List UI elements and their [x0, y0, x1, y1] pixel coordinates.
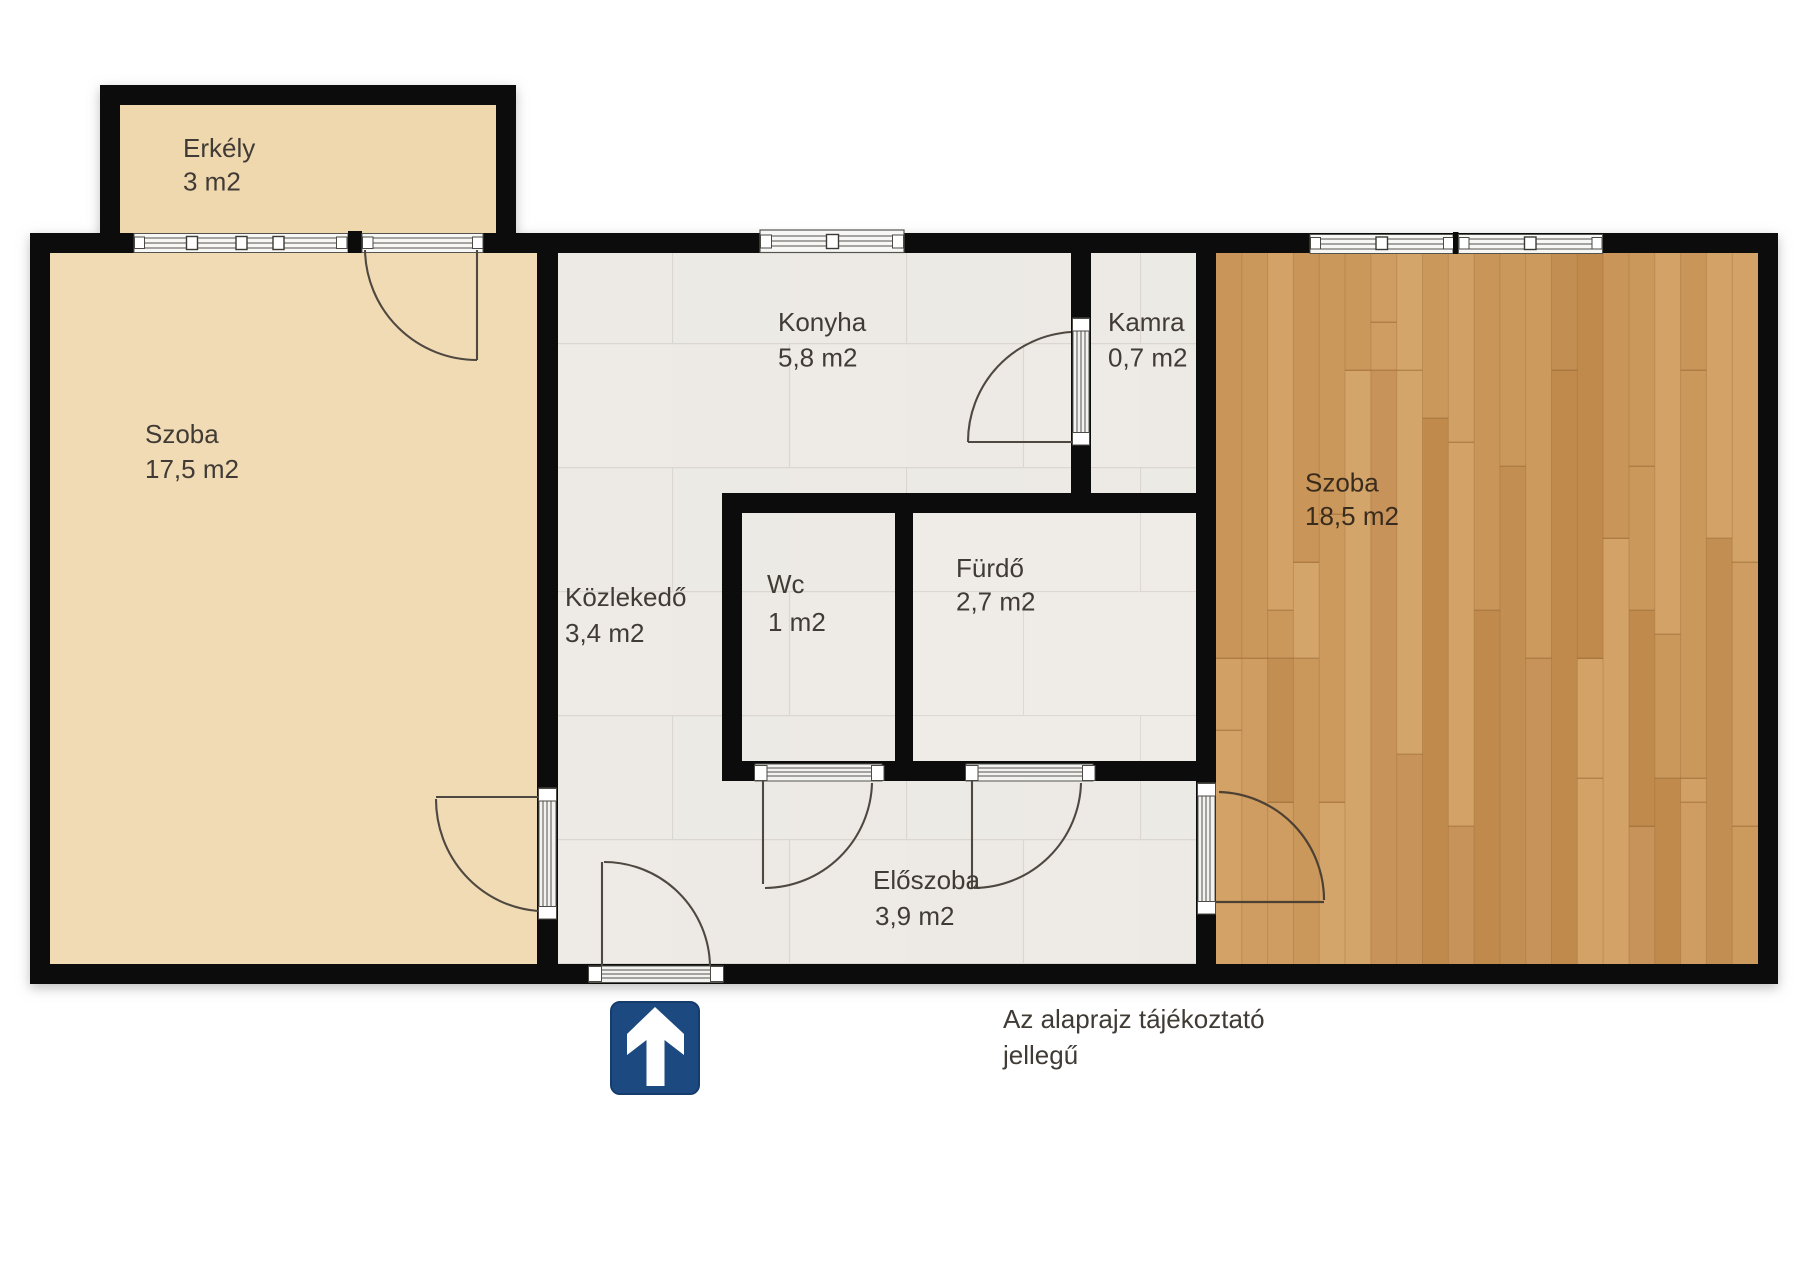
svg-text:3,4 m2: 3,4 m2: [565, 618, 645, 648]
svg-text:1 m2: 1 m2: [768, 607, 826, 637]
svg-text:3,9 m2: 3,9 m2: [875, 901, 955, 931]
svg-text:2,7 m2: 2,7 m2: [956, 587, 1036, 617]
svg-text:Szoba: Szoba: [1305, 468, 1379, 498]
svg-text:jellegű: jellegű: [1002, 1040, 1078, 1070]
svg-text:18,5 m2: 18,5 m2: [1305, 501, 1399, 531]
svg-text:0,7 m2: 0,7 m2: [1108, 343, 1188, 373]
svg-text:Konyha: Konyha: [778, 307, 867, 337]
svg-text:3 m2: 3 m2: [183, 167, 241, 197]
svg-text:Előszoba: Előszoba: [873, 865, 980, 895]
svg-text:Szoba: Szoba: [145, 419, 219, 449]
svg-text:Wc: Wc: [767, 569, 805, 599]
svg-text:Kamra: Kamra: [1108, 307, 1185, 337]
svg-text:Erkély: Erkély: [183, 133, 255, 163]
svg-text:Az alaprajz tájékoztató: Az alaprajz tájékoztató: [1003, 1004, 1265, 1034]
svg-text:17,5 m2: 17,5 m2: [145, 454, 239, 484]
svg-text:5,8 m2: 5,8 m2: [778, 343, 858, 373]
svg-text:Közlekedő: Közlekedő: [565, 582, 686, 612]
svg-text:Fürdő: Fürdő: [956, 553, 1024, 583]
